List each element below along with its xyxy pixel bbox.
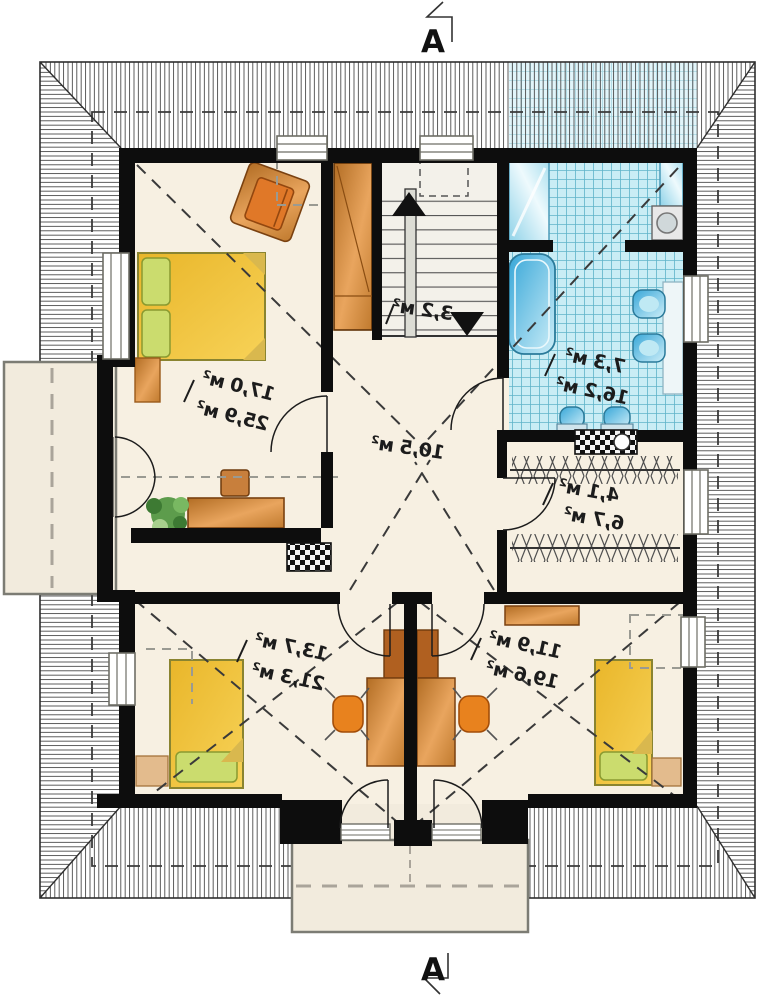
section-letter-bottom: A [421,952,445,988]
dresser [135,358,160,402]
toilet [557,407,587,431]
roof-band-top [40,62,755,148]
desk [367,678,405,766]
window-left-lower [109,653,135,705]
vanity-counter [663,282,683,394]
window-right-bedroom [681,617,705,667]
tall-cabinet [417,630,438,678]
wall-left-bay [97,355,113,600]
pillow [142,310,170,357]
wall-top [119,148,697,163]
desk-chair [221,470,249,496]
nightstand [136,756,168,786]
double-bed [138,253,265,360]
hall-wardrobe [334,163,372,330]
single-bed-left [170,660,243,788]
tall-cabinet [384,630,405,678]
window-left-bedroom [103,253,129,359]
window-top-2 [420,136,473,160]
floor-plan-svg: 17,0 м² 25,9 м² 3,2 м² 10,5 м² 7,3 м² 16… [0,0,783,1000]
window-top-1 [277,136,327,160]
section-marker-top: A [421,2,452,60]
wardrobe-cabinet [505,606,579,625]
section-letter-top: A [421,24,445,60]
desk [417,678,455,766]
balcony-door-threshold-right [432,824,481,840]
single-bed-right [595,660,652,785]
wall-bottom-right [528,794,697,808]
pillow [142,258,170,305]
window-right-bathroom [684,276,708,342]
wall-bottom-left [97,794,282,808]
desk [188,498,284,528]
section-marker-bottom: A [421,952,448,994]
floor-plan-page: 17,0 м² 25,9 м² 3,2 м² 10,5 м² 7,3 м² 16… [0,0,783,1000]
bidet [601,407,633,431]
window-right-wardrobe [684,470,708,534]
balcony-door-threshold-left [341,824,390,840]
